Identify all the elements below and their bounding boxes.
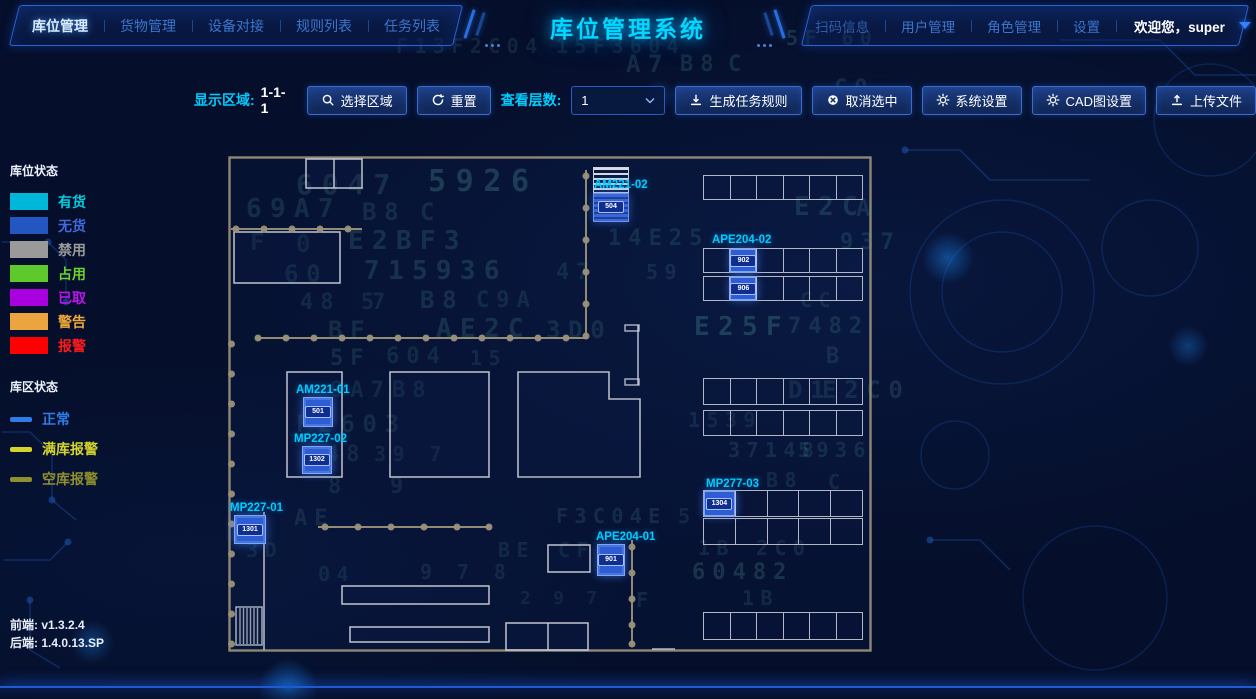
primary-nav-panel: 库位管理 货物管理 设备对接 规则列表 任务列表	[9, 5, 463, 46]
storage-cell[interactable]	[736, 491, 768, 516]
storage-cell[interactable]	[810, 277, 836, 300]
legend-sidebar: 库位状态 有货 无货 禁用 占用 已取	[10, 162, 140, 487]
storage-cell-MP227-01[interactable]: 1301	[234, 515, 266, 544]
reset-label: 重置	[451, 91, 477, 110]
legend-item-occupied: 占用	[10, 265, 140, 282]
reset-button[interactable]: 重置	[417, 86, 491, 115]
storage-cell[interactable]	[831, 491, 862, 516]
frontend-version-label: 前端:	[10, 618, 38, 632]
legend-item-picked: 已取	[10, 289, 140, 306]
nav-item-settings[interactable]: 设置	[1057, 16, 1116, 36]
legend-item-area-normal: 正常	[10, 411, 140, 427]
storage-cell[interactable]	[704, 277, 730, 300]
system-settings-button[interactable]: 系统设置	[922, 86, 1022, 115]
circuit-rings	[910, 64, 1256, 670]
nav-item-rule-list[interactable]: 规则列表	[280, 16, 368, 36]
toolbar: 显示区域: 1-1-1 选择区域 重置 查看层数: 1	[194, 85, 1256, 115]
version-info: 前端: v1.3.2.4 后端: 1.4.0.13.SP	[10, 616, 104, 652]
storage-cell[interactable]	[757, 411, 784, 436]
system-settings-label: 系统设置	[956, 91, 1008, 110]
area-status-legend: 正常 满库报警 空库报警	[10, 411, 140, 487]
hex-decor: A7	[626, 50, 670, 78]
rack-MP277-03: 1304	[703, 490, 863, 545]
storage-cell[interactable]	[837, 379, 863, 404]
cell-badge: 906	[730, 283, 756, 295]
secondary-nav: 扫码信息 用户管理 角色管理 设置 欢迎您，super	[807, 6, 1243, 45]
rack-row: 902	[703, 248, 863, 273]
rack-bottom-right	[703, 612, 863, 640]
search-icon	[321, 93, 335, 107]
storage-cell[interactable]	[757, 379, 784, 404]
download-icon	[689, 93, 703, 107]
legend-item-has-goods: 有货	[10, 193, 140, 210]
storage-cell[interactable]	[704, 519, 736, 544]
legend-label: 禁用	[58, 240, 86, 260]
header: 库位管理 货物管理 设备对接 规则列表 任务列表 库位管理系统 扫码信息 用户管…	[0, 0, 1256, 54]
storage-cell[interactable]	[831, 519, 862, 544]
zone-label-MP227-01: MP227-01	[230, 502, 283, 514]
zone-label-MP227-02: MP227-02	[294, 433, 347, 445]
rack-row	[703, 518, 863, 545]
primary-nav: 库位管理 货物管理 设备对接 规则列表 任务列表	[15, 6, 457, 45]
generate-task-rules-label: 生成任务规则	[709, 91, 787, 110]
zone-label-APE204-01: APE204-01	[596, 531, 655, 543]
header-deco-slash	[463, 9, 475, 38]
cell-badge: 504	[598, 201, 624, 213]
legend-label: 正常	[42, 409, 70, 429]
storage-cell-selected[interactable]: 906	[730, 277, 757, 300]
gear-icon	[1046, 93, 1060, 107]
cad-settings-label: CAD图设置	[1066, 91, 1132, 110]
storage-cell[interactable]	[799, 519, 831, 544]
storage-cell[interactable]	[784, 411, 811, 436]
nav-item-device-docking[interactable]: 设备对接	[192, 16, 280, 36]
storage-cell[interactable]	[757, 277, 783, 300]
select-region-label: 选择区域	[341, 91, 393, 110]
cell-badge: 902	[730, 255, 756, 267]
storage-cell[interactable]	[810, 613, 837, 639]
zone-label-AM221-02: AM221-02	[594, 179, 648, 191]
hex-decor: C	[728, 52, 748, 77]
storage-cell[interactable]	[799, 491, 831, 516]
storage-cell[interactable]	[768, 491, 800, 516]
map-zones-layer: 9029061304AM221-02504APE204-02AM221-0150…	[228, 156, 872, 652]
frontend-version-value: v1.3.2.4	[41, 618, 84, 632]
nav-item-scan-info[interactable]: 扫码信息	[799, 16, 885, 36]
cell-badge: 901	[598, 554, 624, 566]
storage-cell[interactable]	[784, 176, 811, 199]
storage-cell-selected[interactable]: 902	[730, 249, 757, 272]
storage-cell-APE204-01[interactable]: 901	[597, 544, 625, 576]
legend-item-warning: 警告	[10, 313, 140, 330]
header-deco-dots	[485, 44, 488, 47]
user-menu-caret-icon[interactable]	[1239, 22, 1251, 29]
storage-cell[interactable]	[784, 277, 810, 300]
legend-line-swatch	[10, 477, 32, 482]
storage-cell[interactable]	[810, 176, 837, 199]
footer-glow-line	[0, 686, 1256, 699]
storage-cell[interactable]	[837, 176, 863, 199]
legend-item-area-full-alarm: 满库报警	[10, 441, 140, 457]
legend-label: 空库报警	[42, 469, 98, 489]
cancel-selection-button[interactable]: 取消选中	[812, 86, 912, 115]
rack-row	[703, 378, 863, 405]
display-area-value: 1-1-1	[261, 84, 293, 116]
nav-item-role-management[interactable]: 角色管理	[971, 16, 1057, 36]
storage-cell[interactable]	[837, 411, 863, 436]
striped-rack-bottom: 504	[593, 193, 629, 222]
legend-swatch	[10, 313, 48, 330]
rack-row: 906	[703, 276, 863, 301]
storage-cell[interactable]	[837, 277, 862, 300]
legend-label: 有货	[58, 192, 86, 212]
upload-icon	[1170, 93, 1184, 107]
rack-row	[703, 410, 863, 437]
zone-label-AM221-01: AM221-01	[296, 384, 350, 396]
storage-cell[interactable]	[704, 411, 731, 436]
storage-cell[interactable]	[704, 613, 731, 639]
legend-item-area-empty-alarm: 空库报警	[10, 471, 140, 487]
app-root: A7B8CF13F2C0415F36045F 60C05936047592669…	[0, 0, 1256, 699]
legend-swatch	[10, 217, 48, 234]
backend-version-label: 后端:	[10, 636, 38, 650]
storage-cell-AM221-01[interactable]: 501	[303, 397, 333, 427]
legend-line-swatch	[10, 417, 32, 422]
cancel-circle-icon	[826, 93, 840, 107]
legend-label: 已取	[58, 288, 86, 308]
area-status-title: 库区状态	[10, 378, 140, 395]
storage-cell[interactable]	[731, 379, 758, 404]
legend-item-disabled: 禁用	[10, 241, 140, 258]
storage-cell[interactable]	[731, 613, 758, 639]
storage-cell[interactable]	[757, 249, 783, 272]
legend-swatch	[10, 193, 48, 210]
legend-label: 警告	[58, 312, 86, 332]
legend-label: 报警	[58, 336, 86, 356]
rack-row	[703, 175, 863, 200]
storage-cell[interactable]	[736, 519, 768, 544]
nav-item-goods-management[interactable]: 货物管理	[104, 16, 192, 36]
display-area-label: 显示区域:	[194, 90, 255, 110]
nav-item-user-management[interactable]: 用户管理	[885, 16, 971, 36]
legend-swatch	[10, 241, 48, 258]
storage-cell[interactable]	[704, 379, 731, 404]
storage-cell[interactable]	[784, 249, 810, 272]
backend-version-value: 1.4.0.13.SP	[41, 636, 104, 650]
storage-cell[interactable]	[784, 613, 811, 639]
secondary-nav-panel: 扫码信息 用户管理 角色管理 设置 欢迎您，super	[801, 5, 1249, 46]
upload-file-button[interactable]: 上传文件	[1156, 86, 1256, 115]
storage-cell[interactable]	[837, 249, 862, 272]
view-layers-select[interactable]: 1	[571, 86, 665, 115]
rack-row: 1304	[703, 490, 863, 517]
legend-line-swatch	[10, 447, 32, 452]
welcome-user-text: 欢迎您，super	[1116, 16, 1233, 36]
storage-cell[interactable]	[810, 379, 837, 404]
cell-badge: 1301	[237, 524, 263, 536]
striped-rack-AM221-02[interactable]: 504	[593, 167, 629, 222]
refresh-icon	[431, 93, 445, 107]
gear-icon	[936, 93, 950, 107]
legend-label: 无货	[58, 216, 86, 236]
legend-item-no-goods: 无货	[10, 217, 140, 234]
storage-cell[interactable]	[731, 176, 758, 199]
select-region-button[interactable]: 选择区域	[307, 86, 407, 115]
storage-cell[interactable]	[704, 176, 731, 199]
storage-cell-MP227-02[interactable]: 1302	[302, 446, 332, 474]
hex-decor: B8	[680, 52, 721, 77]
legend-item-alarm: 报警	[10, 337, 140, 354]
backend-version: 后端: 1.4.0.13.SP	[10, 634, 104, 652]
frontend-version: 前端: v1.3.2.4	[10, 616, 104, 634]
storage-cell[interactable]	[731, 411, 758, 436]
cell-badge: 1304	[706, 498, 732, 510]
storage-cell[interactable]	[704, 249, 730, 272]
cancel-selection-label: 取消选中	[846, 91, 898, 110]
generate-task-rules-button[interactable]: 生成任务规则	[675, 86, 801, 115]
chevron-down-icon	[645, 97, 655, 104]
view-layers-label: 查看层数:	[501, 90, 562, 110]
upload-file-label: 上传文件	[1190, 91, 1242, 110]
legend-swatch	[10, 337, 48, 354]
nav-item-slot-management[interactable]: 库位管理	[16, 16, 104, 36]
page-title: 库位管理系统	[478, 10, 778, 44]
cell-badge: 1302	[304, 454, 330, 466]
zone-label-MP277-03: MP277-03	[706, 478, 759, 490]
nav-item-task-list[interactable]: 任务列表	[368, 16, 456, 36]
storage-cell[interactable]	[810, 411, 837, 436]
zone-label-APE204-02: APE204-02	[712, 234, 771, 246]
cell-badge: 501	[305, 406, 331, 418]
storage-cell[interactable]	[837, 613, 863, 639]
storage-cell[interactable]	[768, 519, 800, 544]
legend-swatch	[10, 265, 48, 282]
storage-cell-selected[interactable]: 1304	[704, 491, 736, 516]
legend-swatch	[10, 289, 48, 306]
rack-row	[703, 612, 863, 640]
legend-label: 满库报警	[42, 439, 98, 459]
storage-cell[interactable]	[757, 613, 784, 639]
rack-top-right	[703, 175, 863, 200]
slot-status-title: 库位状态	[10, 162, 140, 179]
slot-status-legend: 有货 无货 禁用 占用 已取 警告	[10, 193, 140, 354]
rack-right-middle	[703, 378, 863, 436]
warehouse-floorplan[interactable]: 9029061304AM221-02504APE204-02AM221-0150…	[228, 156, 872, 652]
storage-cell[interactable]	[784, 379, 811, 404]
cad-settings-button[interactable]: CAD图设置	[1032, 86, 1146, 115]
rack-APE204-02: 902906	[703, 248, 863, 301]
header-deco-dots	[757, 44, 760, 47]
storage-cell[interactable]	[810, 249, 836, 272]
storage-cell[interactable]	[757, 176, 784, 199]
legend-label: 占用	[58, 264, 86, 284]
view-layers-value: 1	[581, 93, 588, 108]
